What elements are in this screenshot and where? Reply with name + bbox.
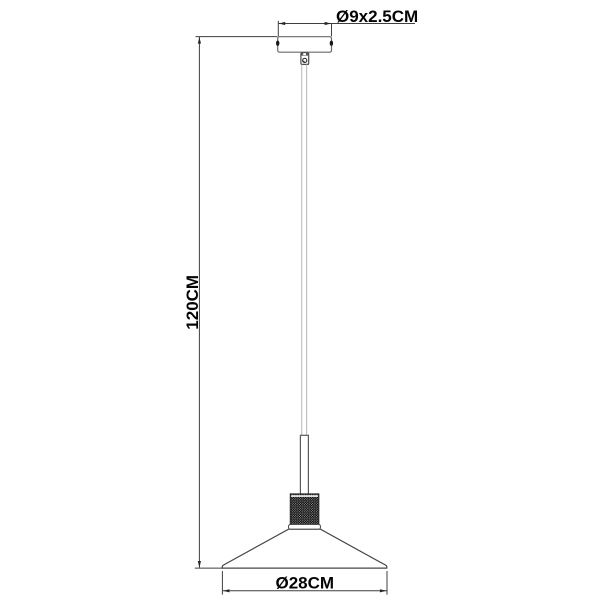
svg-text:Ø28CM: Ø28CM bbox=[276, 574, 335, 593]
svg-text:120CM: 120CM bbox=[183, 275, 202, 330]
svg-text:Ø9x2.5CM: Ø9x2.5CM bbox=[336, 7, 418, 26]
